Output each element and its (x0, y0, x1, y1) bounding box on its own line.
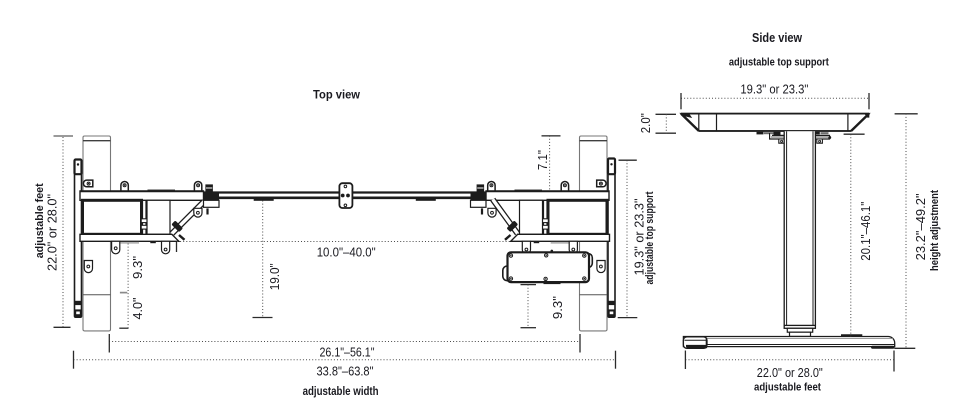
svg-text:height adjustment: height adjustment (929, 190, 941, 271)
svg-text:19.0": 19.0" (267, 263, 282, 290)
svg-text:22.0" or 28.0": 22.0" or 28.0" (44, 194, 59, 271)
svg-text:22.0" or 28.0": 22.0" or 28.0" (757, 365, 823, 380)
svg-text:Side view: Side view (752, 30, 803, 45)
svg-text:19.3" or 23.3": 19.3" or 23.3" (740, 82, 808, 97)
svg-text:10.0"–40.0": 10.0"–40.0" (317, 245, 376, 260)
svg-text:Top view: Top view (313, 88, 360, 102)
svg-text:4.0": 4.0" (130, 297, 145, 319)
svg-text:adjustable top support: adjustable top support (729, 56, 829, 68)
svg-text:7.1": 7.1" (535, 150, 550, 170)
svg-text:9.3": 9.3" (130, 256, 145, 279)
svg-text:23.2"–49.2": 23.2"–49.2" (913, 193, 928, 260)
svg-text:26.1"–56.1": 26.1"–56.1" (320, 344, 375, 359)
svg-text:adjustable feet: adjustable feet (754, 382, 821, 394)
svg-text:33.8"–63.8": 33.8"–63.8" (317, 363, 374, 378)
svg-text:adjustable top support: adjustable top support (644, 191, 656, 284)
svg-text:2.0": 2.0" (638, 113, 653, 133)
svg-text:adjustable width: adjustable width (303, 386, 379, 398)
svg-text:20.1"–46.1": 20.1"–46.1" (858, 201, 873, 260)
svg-text:9.3": 9.3" (550, 296, 565, 319)
